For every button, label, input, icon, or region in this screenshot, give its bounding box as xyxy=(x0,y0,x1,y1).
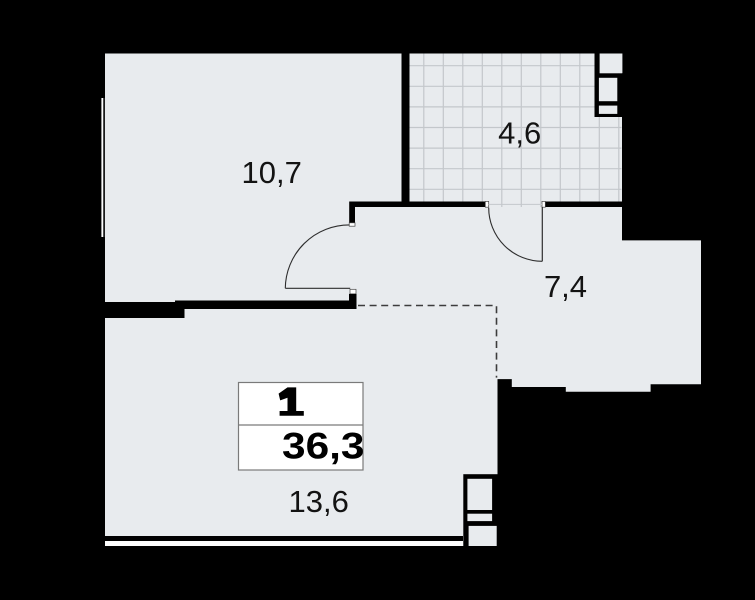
svg-text:36,3: 36,3 xyxy=(282,426,365,467)
svg-text:4,6: 4,6 xyxy=(498,116,541,151)
svg-text:7,4: 7,4 xyxy=(544,269,587,304)
svg-text:10,7: 10,7 xyxy=(242,155,302,190)
svg-text:13,6: 13,6 xyxy=(289,484,349,519)
